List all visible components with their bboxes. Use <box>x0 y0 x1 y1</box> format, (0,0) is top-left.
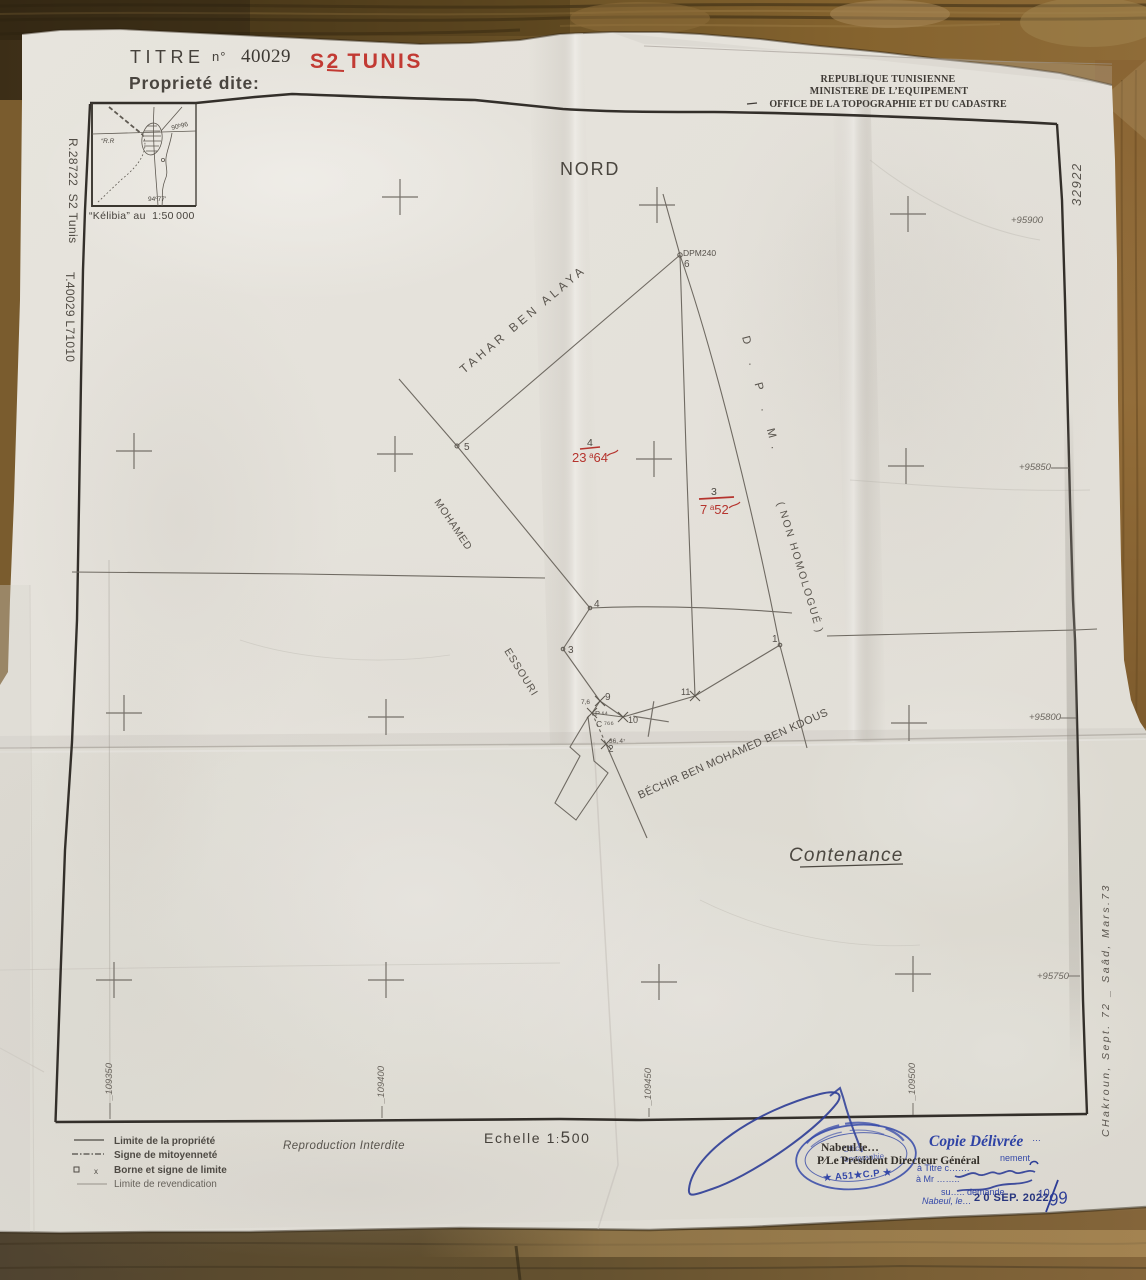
svg-text:_109350: _109350 <box>104 1062 115 1101</box>
svg-text:2: 2 <box>608 744 614 755</box>
svg-text:à Mr ……..: à Mr …….. <box>916 1174 960 1184</box>
svg-text:Nabeul, le…: Nabeul, le… <box>922 1196 972 1206</box>
svg-text:10: 10 <box>628 715 638 725</box>
svg-text:9: 9 <box>605 692 611 703</box>
svg-text:P ⁶⁴: P ⁶⁴ <box>595 709 608 718</box>
svg-text:Borne et signe de limite: Borne et signe de limite <box>114 1165 227 1176</box>
svg-text:Limite de revendication: Limite de revendication <box>114 1179 217 1190</box>
svg-text:S2 TUNIS: S2 TUNIS <box>310 50 423 73</box>
svg-text:+95800: +95800 <box>1029 712 1062 723</box>
svg-text:“R.R: “R.R <box>101 138 115 145</box>
svg-text:+95750: +95750 <box>1037 971 1070 982</box>
svg-text:32922: 32922 <box>1069 162 1084 206</box>
svg-text:1: 1 <box>772 634 778 645</box>
svg-text:36, 4⁷: 36, 4⁷ <box>609 738 626 745</box>
svg-text:7,6: 7,6 <box>581 699 590 706</box>
svg-text:4: 4 <box>594 599 600 610</box>
svg-text:T.40029 L71010: T.40029 L71010 <box>63 272 77 362</box>
svg-text:3: 3 <box>711 486 717 498</box>
svg-text:_109500: _109500 <box>907 1062 918 1101</box>
svg-text:x: x <box>94 1167 98 1176</box>
svg-text:5: 5 <box>464 442 470 453</box>
svg-text:à Titre c…….: à Titre c……. <box>917 1163 970 1173</box>
svg-text:7 a52: 7 a52 <box>700 502 729 517</box>
svg-text:REPUBLIQUE TUNISIENNE: REPUBLIQUE TUNISIENNE <box>821 74 956 85</box>
svg-text:_109400: _109400 <box>376 1065 387 1104</box>
svg-text:Echelle 1:500: Echelle 1:500 <box>484 1128 591 1147</box>
svg-text:Nabeul le…: Nabeul le… <box>821 1142 879 1154</box>
svg-text:CHakroun, Sept. 72 _ Saâd, Mar: CHakroun, Sept. 72 _ Saâd, Mars.73 <box>1100 883 1112 1137</box>
svg-text:n°: n° <box>212 49 226 64</box>
svg-text:Proprieté dite:: Proprieté dite: <box>129 73 260 93</box>
svg-text:Signe de mitoyenneté: Signe de mitoyenneté <box>114 1150 218 1161</box>
svg-text:+95900: +95900 <box>1011 215 1044 226</box>
svg-text:C ⁷⁶⁶: C ⁷⁶⁶ <box>596 719 614 729</box>
svg-text:Copie Délivrée: Copie Délivrée <box>929 1133 1023 1150</box>
svg-text:3: 3 <box>568 645 574 656</box>
svg-text:6: 6 <box>684 259 690 270</box>
svg-text:nement: nement <box>1000 1153 1031 1163</box>
svg-text:NORD: NORD <box>560 159 620 179</box>
svg-text:Limite de la propriété: Limite de la propriété <box>114 1136 216 1147</box>
svg-text:MINISTERE DE L’EQUIPEMENT: MINISTERE DE L’EQUIPEMENT <box>810 86 969 97</box>
svg-text:OFFICE DE LA TOPOGRAPHIE ET DU: OFFICE DE LA TOPOGRAPHIE ET DU CADASTRE <box>769 99 1007 110</box>
svg-text:+95850: +95850 <box>1019 462 1052 473</box>
svg-text:11: 11 <box>681 687 690 697</box>
svg-text:94º77′: 94º77′ <box>148 196 167 203</box>
svg-text:R.28722 S2 Tunis: R.28722 S2 Tunis <box>66 138 80 244</box>
svg-text:_109450: _109450 <box>643 1067 654 1106</box>
svg-text:TITRE: TITRE <box>130 47 205 67</box>
svg-text:…: … <box>1032 1133 1041 1143</box>
svg-text:DPM240: DPM240 <box>683 248 716 258</box>
svg-text:Reproduction Interdite: Reproduction Interdite <box>283 1140 405 1152</box>
svg-text:Contenance: Contenance <box>789 845 903 866</box>
svg-text:“Kélibia” au 1:50 000: “Kélibia” au 1:50 000 <box>89 210 195 222</box>
svg-text:40029: 40029 <box>241 46 291 67</box>
